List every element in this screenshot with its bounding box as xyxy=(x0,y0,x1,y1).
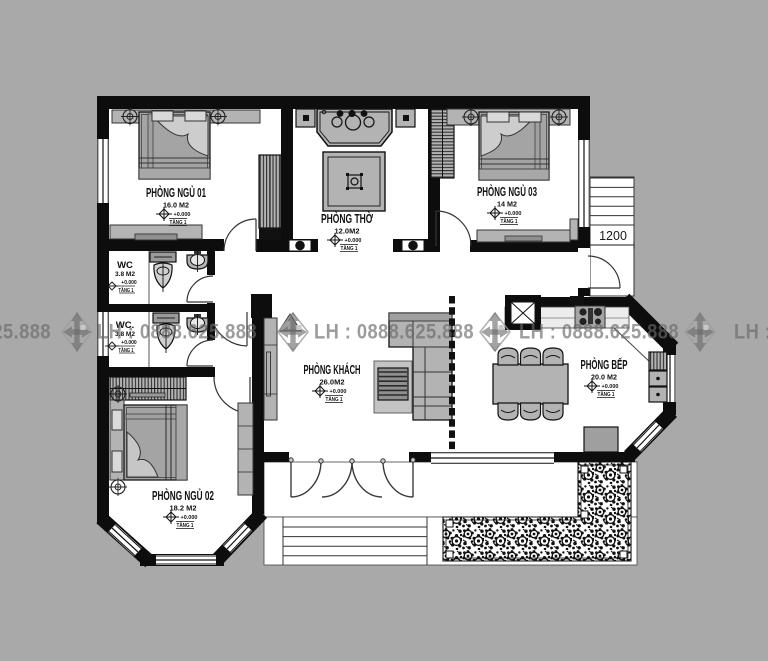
svg-text:LH : 0888.625.888: LH : 0888.625.888 xyxy=(97,320,257,344)
svg-text:+0.000: +0.000 xyxy=(174,212,191,218)
svg-text:LH : 0888.625.888: LH : 0888.625.888 xyxy=(0,320,51,344)
svg-text:TẦNG 1: TẦNG 1 xyxy=(326,396,343,403)
svg-text:LH : 0888.625.888: LH : 0888.625.888 xyxy=(519,320,679,344)
svg-text:+0.000: +0.000 xyxy=(505,211,522,217)
svg-text:PHÒNG BẾP: PHÒNG BẾP xyxy=(581,357,628,372)
svg-text:PHÒNG THỜ: PHÒNG THỜ xyxy=(321,211,373,226)
svg-text:12.0M2: 12.0M2 xyxy=(335,227,360,236)
svg-text:TẦNG 1: TẦNG 1 xyxy=(170,219,187,226)
svg-text:18.2 M2: 18.2 M2 xyxy=(170,504,197,513)
svg-text:TẦNG 1: TẦNG 1 xyxy=(341,245,358,252)
svg-text:PHÒNG KHÁCH: PHÒNG KHÁCH xyxy=(304,362,361,377)
svg-text:PHÒNG NGỦ 03: PHÒNG NGỦ 03 xyxy=(477,184,537,199)
svg-text:WC: WC xyxy=(117,260,133,271)
svg-text:1200: 1200 xyxy=(599,229,627,243)
svg-text:20.0 M2: 20.0 M2 xyxy=(591,373,617,382)
svg-text:+0.000: +0.000 xyxy=(181,515,198,521)
svg-text:3.8 M2: 3.8 M2 xyxy=(115,272,136,278)
svg-text:LH : 0888.625.888: LH : 0888.625.888 xyxy=(734,320,768,344)
svg-text:+0.000: +0.000 xyxy=(121,280,137,286)
svg-text:TẦNG 1: TẦNG 1 xyxy=(177,522,194,529)
svg-text:+0.000: +0.000 xyxy=(330,389,347,395)
svg-text:14 M2: 14 M2 xyxy=(497,200,517,209)
svg-text:PHÒNG NGỦ 02: PHÒNG NGỦ 02 xyxy=(152,488,214,503)
svg-text:TẦNG 1: TẦNG 1 xyxy=(501,218,518,225)
svg-text:+0.000: +0.000 xyxy=(602,384,619,390)
svg-text:PHÒNG NGỦ 01: PHÒNG NGỦ 01 xyxy=(146,185,206,200)
svg-text:+0.000: +0.000 xyxy=(345,238,362,244)
svg-text:TẦNG 1: TẦNG 1 xyxy=(598,391,615,398)
svg-text:16.0 M2: 16.0 M2 xyxy=(163,201,189,210)
svg-text:LH : 0888.625.888: LH : 0888.625.888 xyxy=(314,320,474,344)
svg-text:26.0M2: 26.0M2 xyxy=(320,378,345,387)
